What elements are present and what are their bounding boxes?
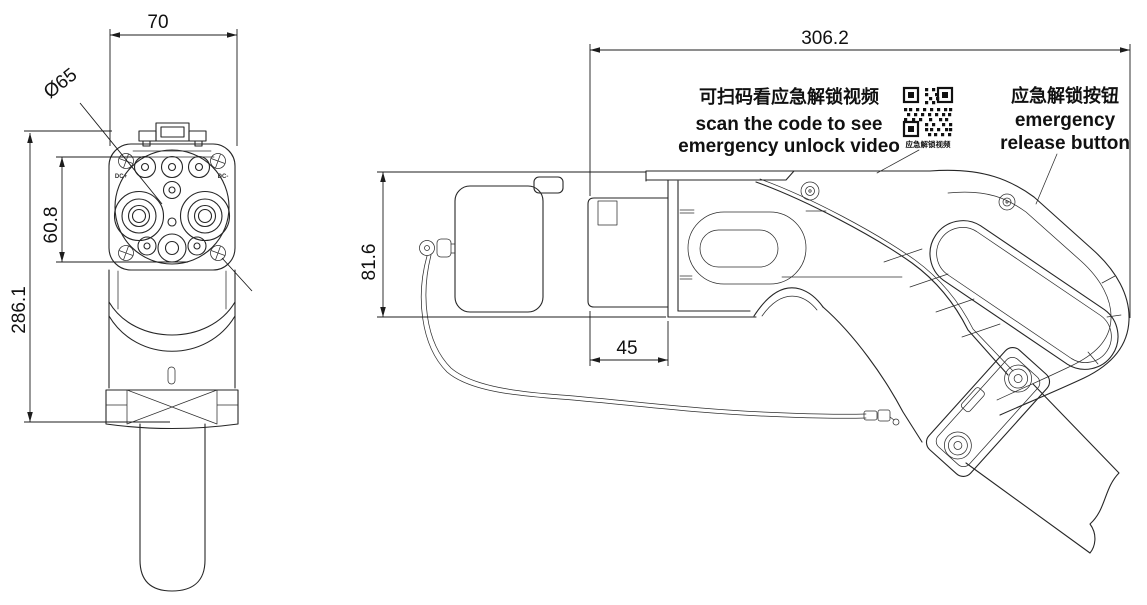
scan-note-zh: 可扫码看应急解锁视频 <box>699 86 879 107</box>
technical-drawing: DC+ DC- 70 Ø65 <box>0 0 1147 605</box>
dust-cap <box>420 177 564 312</box>
cable-side-view <box>966 384 1119 553</box>
dim-diameter-65: Ø65 <box>40 64 162 204</box>
dim-nozzle-45: 45 <box>590 311 668 366</box>
pin-label-dc-minus: DC- <box>218 174 229 180</box>
svg-text:60.8: 60.8 <box>41 207 62 244</box>
connector-body <box>109 270 235 388</box>
cable-clamp <box>922 343 1053 480</box>
coupling-nut <box>106 390 238 429</box>
side-view: 306.2 81.6 45 可扫码看应急解锁视频 scan the code t… <box>359 28 1130 553</box>
release-note-en1: emergency <box>1015 110 1116 131</box>
gun-handle <box>930 170 1129 415</box>
front-view: DC+ DC- 70 Ø65 <box>9 12 252 591</box>
dim-width-70: 70 <box>110 12 237 146</box>
svg-text:286.1: 286.1 <box>9 286 30 334</box>
release-note-en2: release button <box>1000 133 1130 154</box>
dim-height-81-6: 81.6 <box>359 172 666 317</box>
svg-text:306.2: 306.2 <box>801 28 849 49</box>
latch-mount <box>139 123 206 146</box>
qr-code: 应急解锁视频 <box>877 88 952 173</box>
cable-front-view <box>140 424 205 591</box>
dust-cap-lanyard <box>421 255 899 425</box>
handle-screw <box>999 194 1015 210</box>
handle-parting-ticks <box>1088 276 1121 364</box>
svg-text:70: 70 <box>147 12 168 33</box>
svg-text:Ø65: Ø65 <box>40 64 81 103</box>
pin-label-dc-plus: DC+ <box>115 174 128 180</box>
screw-leader-line <box>222 258 252 291</box>
body-screw <box>801 182 819 200</box>
dim-overall-height-286-1: 286.1 <box>9 131 170 422</box>
release-leader-line <box>1036 154 1057 204</box>
svg-text:45: 45 <box>616 338 637 359</box>
gun-nozzle <box>588 198 668 307</box>
release-button-note: 应急解锁按钮 emergency release button <box>1000 85 1130 204</box>
release-note-zh: 应急解锁按钮 <box>1011 85 1119 106</box>
svg-text:81.6: 81.6 <box>359 244 380 281</box>
handle-opening <box>930 221 1118 370</box>
scan-note-en1: scan the code to see <box>696 114 883 135</box>
drawing-page: DC+ DC- 70 Ø65 <box>0 0 1147 605</box>
scan-note-en2: emergency unlock video <box>678 136 900 157</box>
scan-note: 可扫码看应急解锁视频 scan the code to see emergenc… <box>678 86 900 157</box>
qr-caption: 应急解锁视频 <box>906 139 951 149</box>
connector-face-plate <box>109 144 235 270</box>
grip-ridges <box>884 249 1000 337</box>
